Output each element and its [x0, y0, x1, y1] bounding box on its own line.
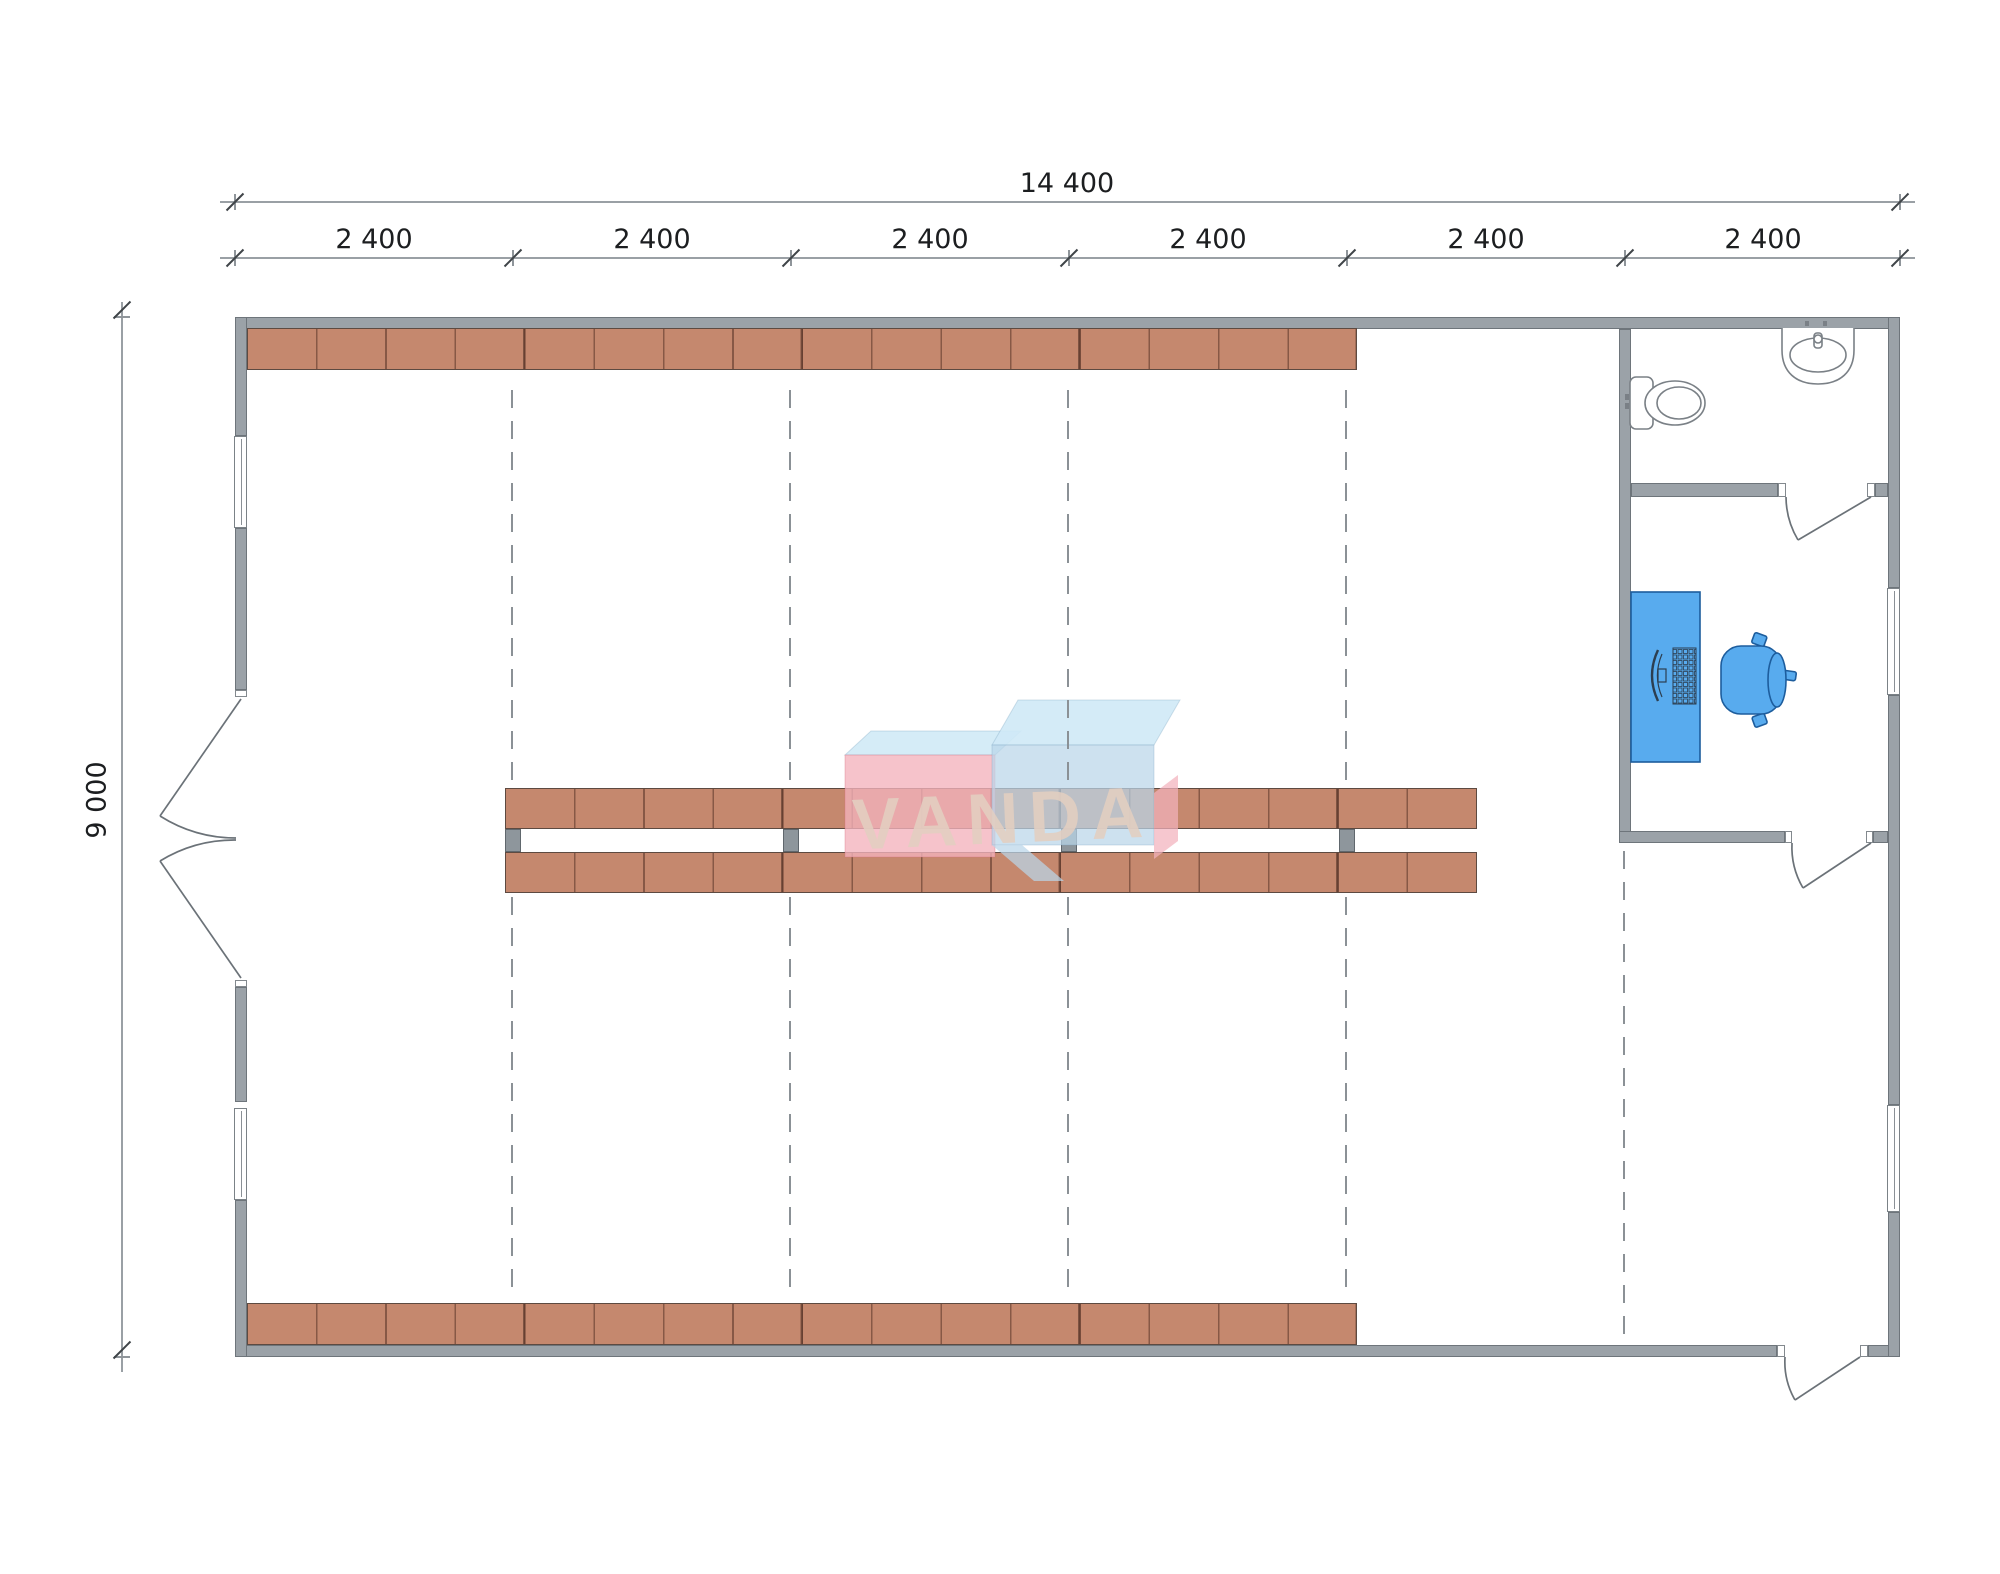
rear-exit-door — [1785, 1357, 1860, 1400]
watermark-pink-flap — [1154, 775, 1178, 859]
grid-line — [789, 897, 791, 1300]
floor-plan: 14 400 2 400 2 400 2 400 2 400 2 400 2 4… — [0, 0, 2000, 1574]
grid-line — [1623, 851, 1625, 1343]
office-chair — [1721, 632, 1796, 727]
sink — [1782, 321, 1854, 384]
watermark-text: VANDA — [851, 772, 1155, 865]
grid-line — [511, 390, 513, 786]
bathroom-door — [1786, 497, 1871, 540]
desk — [1631, 592, 1700, 762]
office-door — [1792, 843, 1871, 888]
toilet — [1625, 377, 1705, 429]
watermark: VANDA — [845, 700, 1180, 881]
grid-line — [1345, 390, 1347, 786]
plan-graphics: VANDA — [0, 0, 2000, 1574]
grid-line — [511, 897, 513, 1300]
watermark-blue-box-top — [992, 700, 1180, 745]
grid-line — [789, 390, 791, 786]
grid-line — [1067, 897, 1069, 1300]
double-entry-door — [160, 699, 241, 978]
keyboard-icon — [1673, 648, 1696, 704]
grid-line — [1067, 390, 1069, 786]
grid-line — [1345, 897, 1347, 1300]
